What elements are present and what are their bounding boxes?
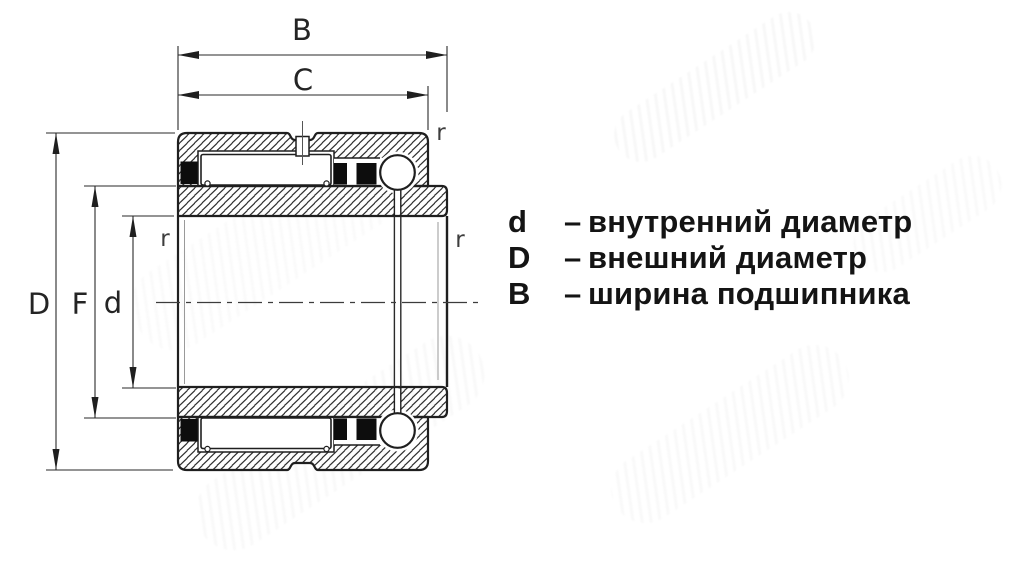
ball-bottom xyxy=(380,413,415,448)
seal-block xyxy=(334,163,348,185)
bearing-top-half xyxy=(178,133,447,216)
seal-block xyxy=(357,163,377,185)
dim-label-C: C xyxy=(293,63,313,97)
dim-label-D: D xyxy=(28,287,50,321)
legend-row-d: d – внутренний диаметр xyxy=(506,204,912,240)
legend-dash: – xyxy=(564,240,588,276)
dim-label-F: F xyxy=(72,287,89,321)
legend-key: D xyxy=(506,240,564,276)
legend-row-B: B – ширина подшипника xyxy=(506,276,912,312)
seal-block xyxy=(357,419,377,441)
legend-row-D: D – внешний диаметр xyxy=(506,240,912,276)
legend: d – внутренний диаметр D – внешний диаме… xyxy=(506,204,912,312)
seal-block xyxy=(181,162,198,185)
dim-label-r-right: r xyxy=(455,227,465,253)
needle-cage-bottom xyxy=(201,418,331,449)
legend-text: внешний диаметр xyxy=(588,240,912,276)
dim-label-r-top-right: r xyxy=(436,120,446,146)
seal-block xyxy=(181,419,198,442)
legend-key: d xyxy=(506,204,564,240)
legend-text: ширина подшипника xyxy=(588,276,912,312)
legend-text: внутренний диаметр xyxy=(588,204,912,240)
dim-label-r-left: r xyxy=(160,226,170,252)
dim-label-B: B xyxy=(292,13,312,47)
seal-block xyxy=(334,419,348,441)
legend-dash: – xyxy=(564,276,588,312)
page: B C D F d r r r d – внутренний диаметр D… xyxy=(0,0,1015,518)
bearing-bottom-half xyxy=(178,387,447,470)
dim-label-d: d xyxy=(104,286,122,320)
legend-dash: – xyxy=(564,204,588,240)
ball-top xyxy=(380,155,415,190)
needle-cage-top xyxy=(201,155,331,186)
legend-key: B xyxy=(506,276,564,312)
